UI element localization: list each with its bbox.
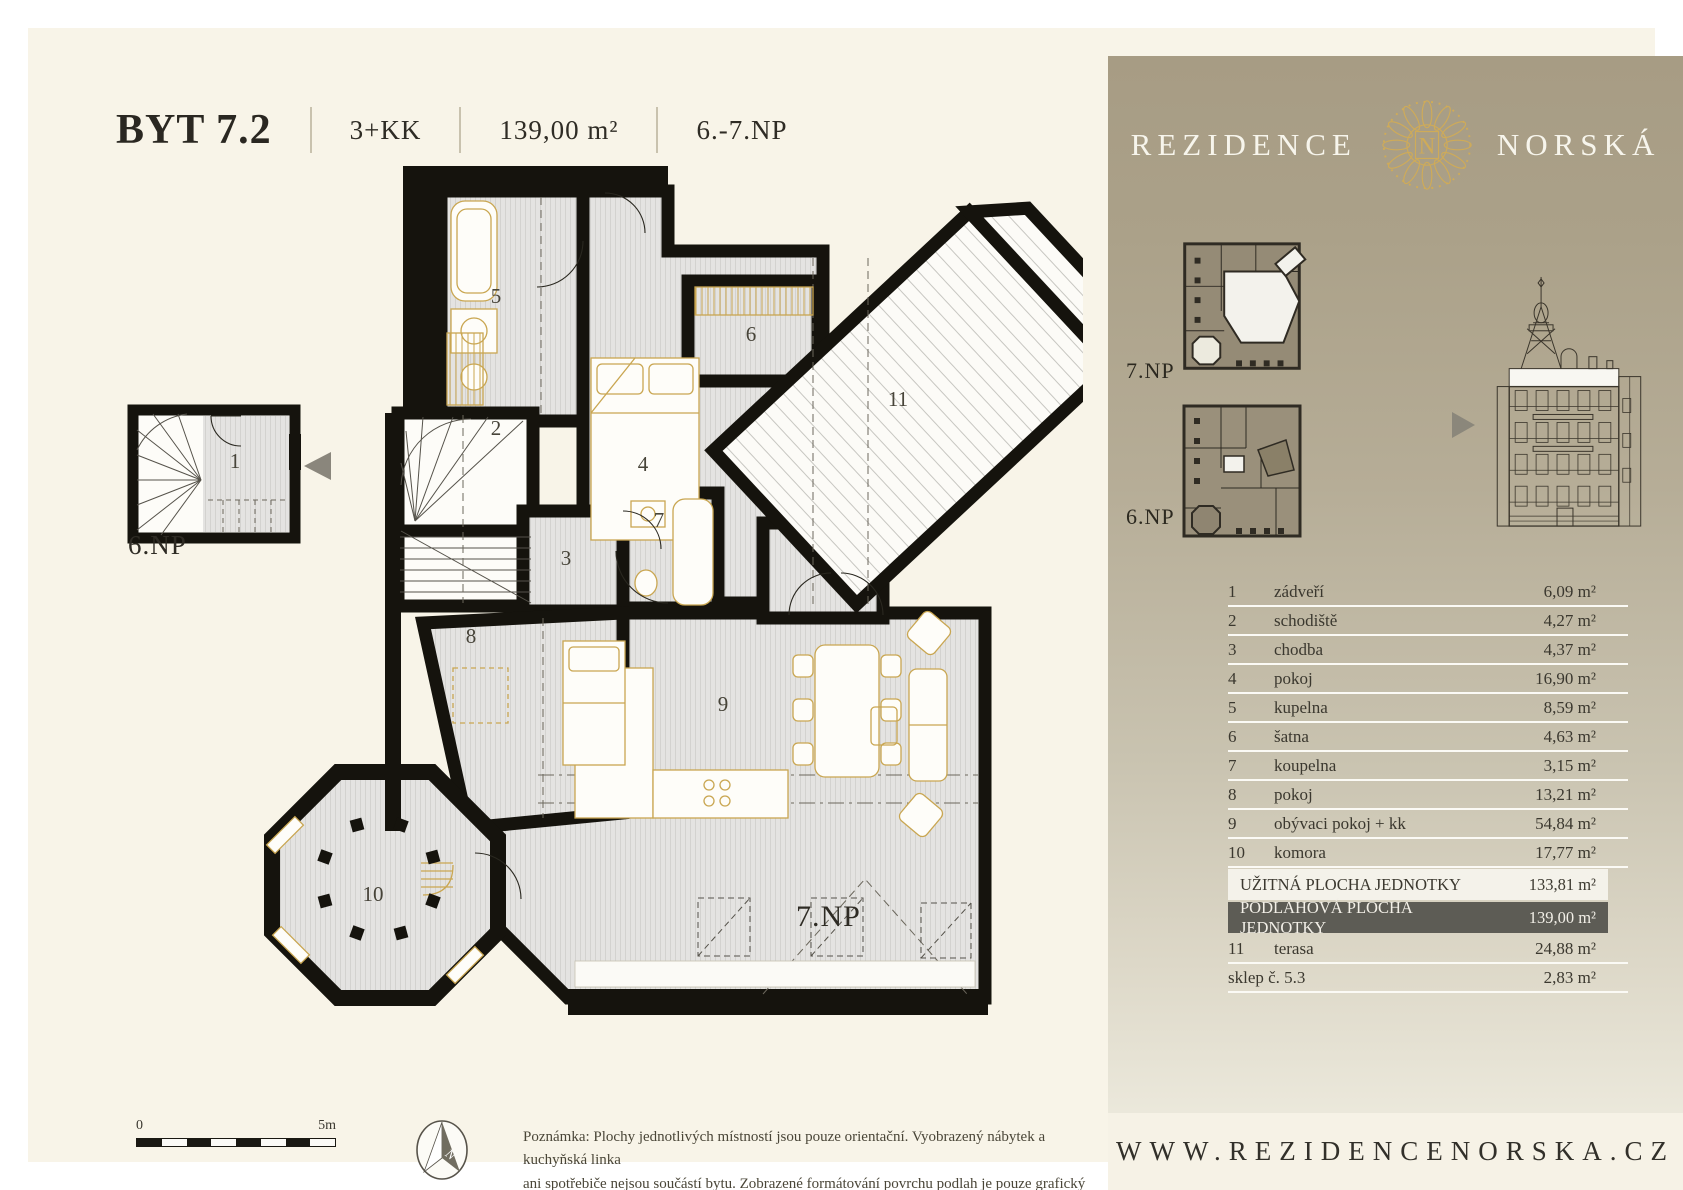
north-compass-icon: N [414, 1116, 470, 1182]
floor-plan-7np: 5 2 3 4 6 7 8 9 10 11 [123, 163, 1083, 1048]
terrace-edge-strip [575, 961, 975, 987]
header-divider [459, 107, 461, 153]
summary-floor-area-row: PODLAHOVÁ PLOCHA JEDNOTKY 139,00 m² [1228, 902, 1608, 933]
unit-area: 139,00 m² [499, 115, 618, 146]
room-label-11: 11 [888, 387, 908, 411]
unit-floors: 6.-7.NP [696, 115, 787, 146]
summary-label: UŽITNÁ PLOCHA JEDNOTKY [1240, 875, 1488, 895]
table-row: sklep č. 5.3 2,83 m² [1228, 964, 1628, 993]
table-row: 6 šatna 4,63 m² [1228, 723, 1628, 752]
row-area: 17,77 m² [1508, 843, 1628, 863]
scale-end-label: 5m [318, 1118, 336, 1134]
table-row: 1 zádveří 6,09 m² [1228, 578, 1628, 607]
room-label-10: 10 [363, 882, 384, 906]
row-area: 4,27 m² [1508, 611, 1628, 631]
entrance-arrow-icon [304, 452, 331, 480]
website-link[interactable]: WWW.REZIDENCENORSKA.CZ [1116, 1136, 1675, 1167]
row-area: 2,83 m² [1508, 968, 1628, 988]
unit-disposition: 3+KK [350, 115, 422, 146]
room-label-3: 3 [561, 546, 572, 570]
room-label-1: 1 [230, 449, 241, 473]
row-name: pokoj [1274, 669, 1508, 689]
sidebar: REZIDENCE [1108, 56, 1683, 1190]
brand-left: REZIDENCE [1131, 127, 1357, 163]
unit-title: BYT 7.2 [116, 106, 272, 154]
row-num: 5 [1228, 698, 1274, 718]
scale-start-label: 0 [136, 1118, 143, 1134]
mini-plan-6np-label: 6.NP [1126, 504, 1175, 530]
disclaimer-note: Poznámka: Plochy jednotlivých místností … [523, 1126, 1103, 1190]
row-area: 16,90 m² [1508, 669, 1628, 689]
table-row: 11 terasa 24,88 m² [1228, 935, 1628, 964]
summary-area: 139,00 m² [1488, 908, 1608, 928]
header-divider [310, 107, 312, 153]
row-num: 9 [1228, 814, 1274, 834]
table-row: 3 chodba 4,37 m² [1228, 636, 1628, 665]
mini-plan-7np [1166, 232, 1316, 390]
row-area: 4,63 m² [1508, 727, 1628, 747]
row-num: 6 [1228, 727, 1274, 747]
table-row: 2 schodiště 4,27 m² [1228, 607, 1628, 636]
row-name: šatna [1274, 727, 1508, 747]
room-label-7: 7 [654, 508, 665, 532]
row-name: chodba [1274, 640, 1508, 660]
row-num: 2 [1228, 611, 1274, 631]
row-area: 54,84 m² [1508, 814, 1628, 834]
note-line-1: Poznámka: Plochy jednotlivých místností … [523, 1126, 1103, 1173]
summary-area: 133,81 m² [1488, 875, 1608, 895]
row-name: komora [1274, 843, 1508, 863]
row-num: 3 [1228, 640, 1274, 660]
scale-bar-segments [136, 1138, 336, 1147]
scale-bar: 0 5m [136, 1118, 336, 1147]
row-num: 4 [1228, 669, 1274, 689]
row-num: 7 [1228, 756, 1274, 776]
table-row: 8 pokoj 13,21 m² [1228, 781, 1628, 810]
row-area: 4,37 m² [1508, 640, 1628, 660]
row-name: kupelna [1274, 698, 1508, 718]
floor-pointer-arrow-icon [1452, 412, 1475, 438]
table-row: 7 koupelna 3,15 m² [1228, 752, 1628, 781]
room-label-5: 5 [491, 284, 502, 308]
table-row: 9 obývaci pokoj + kk 54,84 m² [1228, 810, 1628, 839]
row-num: 10 [1228, 843, 1274, 863]
room-area-table: 1 zádveří 6,09 m² 2 schodiště 4,27 m² 3 … [1228, 578, 1628, 993]
row-area: 3,15 m² [1508, 756, 1628, 776]
brand-right: NORSKÁ [1497, 127, 1660, 163]
table-row: 10 komora 17,77 m² [1228, 839, 1628, 868]
row-name: koupelna [1274, 756, 1508, 776]
row-area: 13,21 m² [1508, 785, 1628, 805]
room-label-4: 4 [638, 452, 649, 476]
room-label-6: 6 [746, 322, 757, 346]
row-num: 8 [1228, 785, 1274, 805]
room-label-9: 9 [718, 692, 729, 716]
header-divider [656, 107, 658, 153]
room-label-2: 2 [491, 416, 502, 440]
row-name: obývaci pokoj + kk [1274, 814, 1508, 834]
mini-plan-7np-label: 7.NP [1126, 358, 1175, 384]
row-num: 1 [1228, 582, 1274, 602]
summary-label: PODLAHOVÁ PLOCHA JEDNOTKY [1240, 898, 1488, 938]
row-name: schodiště [1274, 611, 1508, 631]
row-area: 8,59 m² [1508, 698, 1628, 718]
table-row: 5 kupelna 8,59 m² [1228, 694, 1628, 723]
row-area: 24,88 m² [1508, 939, 1628, 959]
row-name: sklep č. 5.3 [1228, 968, 1508, 988]
small-plan-floor-label: 6.NP [128, 530, 187, 561]
note-line-2: ani spotřebiče nejsou součástí bytu. Zob… [523, 1173, 1103, 1190]
brand-monogram: N [1419, 133, 1436, 159]
row-name: pokoj [1274, 785, 1508, 805]
building-elevation [1464, 269, 1664, 543]
room-label-8: 8 [466, 624, 477, 648]
summary-usable-area-row: UŽITNÁ PLOCHA JEDNOTKY 133,81 m² [1228, 869, 1608, 900]
row-name: zádveří [1274, 582, 1508, 602]
main-plan-floor-label: 7.NP [796, 900, 861, 934]
row-name: terasa [1274, 939, 1508, 959]
brand-ornament-icon: N [1379, 97, 1475, 193]
mini-plan-6np [1166, 398, 1316, 550]
table-row: 4 pokoj 16,90 m² [1228, 665, 1628, 694]
brochure-card: BYT 7.2 3+KK 139,00 m² 6.-7.NP [28, 28, 1655, 1162]
row-num: 11 [1228, 939, 1274, 959]
website-band: WWW.REZIDENCENORSKA.CZ [1108, 1113, 1683, 1190]
header: BYT 7.2 3+KK 139,00 m² 6.-7.NP [116, 106, 787, 154]
row-area: 6,09 m² [1508, 582, 1628, 602]
brochure-page: BYT 7.2 3+KK 139,00 m² 6.-7.NP [0, 0, 1683, 1190]
brand-header: REZIDENCE [1108, 90, 1683, 200]
